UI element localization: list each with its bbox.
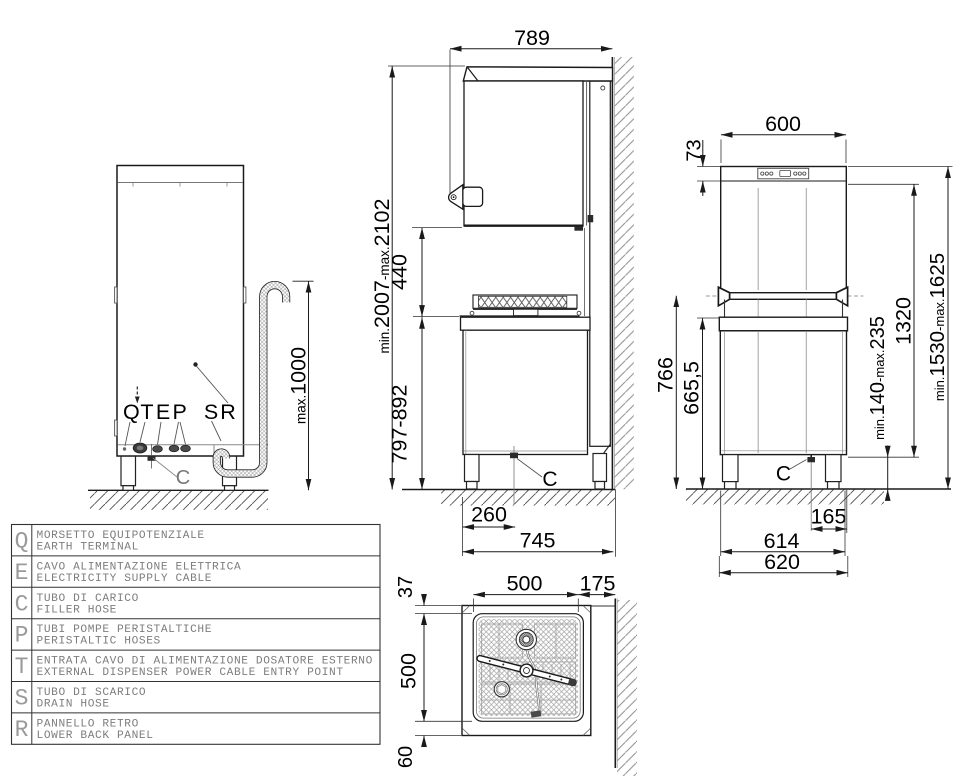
svg-text:E: E (156, 400, 170, 424)
svg-text:ELECTRICITY SUPPLY CABLE: ELECTRICITY SUPPLY CABLE (37, 573, 213, 585)
svg-text:MORSETTO EQUIPOTENZIALE: MORSETTO EQUIPOTENZIALE (37, 530, 205, 542)
svg-text:440: 440 (388, 254, 412, 290)
svg-text:TUBI POMPE PERISTALTICHE: TUBI POMPE PERISTALTICHE (37, 624, 213, 636)
svg-text:CAVO ALIMENTAZIONE ELETTRICA: CAVO ALIMENTAZIONE ELETTRICA (37, 561, 242, 573)
svg-text:S: S (15, 686, 29, 712)
svg-text:620: 620 (764, 550, 800, 574)
svg-text:Q: Q (15, 529, 29, 555)
svg-text:C: C (15, 591, 29, 617)
svg-text:EARTH TERMINAL: EARTH TERMINAL (37, 542, 139, 554)
svg-text:P: P (15, 623, 29, 649)
svg-text:LOWER BACK PANEL: LOWER BACK PANEL (37, 730, 154, 742)
svg-text:C: C (176, 467, 190, 489)
svg-text:R: R (220, 400, 236, 424)
svg-text:175: 175 (580, 572, 616, 596)
svg-text:E: E (15, 560, 29, 586)
svg-text:TUBO DI SCARICO: TUBO DI SCARICO (37, 687, 147, 699)
svg-text:C: C (776, 463, 791, 486)
svg-text:C: C (542, 468, 557, 491)
svg-text:R: R (15, 717, 29, 743)
svg-text:500: 500 (507, 572, 543, 596)
svg-text:ENTRATA CAVO DI ALIMENTAZIONE: ENTRATA CAVO DI ALIMENTAZIONE DOSATORE E… (37, 656, 373, 668)
svg-text:Q: Q (123, 400, 140, 424)
svg-text:PERISTALTIC HOSES: PERISTALTIC HOSES (37, 636, 161, 648)
svg-text:T: T (140, 400, 153, 424)
svg-text:73: 73 (684, 139, 706, 161)
svg-text:797-892: 797-892 (388, 385, 412, 464)
svg-text:165: 165 (811, 505, 847, 529)
svg-text:789: 789 (514, 26, 550, 50)
svg-text:PANNELLO RETRO: PANNELLO RETRO (37, 718, 139, 730)
svg-text:600: 600 (765, 112, 801, 136)
svg-text:EXTERNAL DISPENSER POWER CABLE: EXTERNAL DISPENSER POWER CABLE ENTRY POI… (37, 667, 344, 679)
svg-text:37: 37 (395, 576, 417, 598)
svg-text:FILLER HOSE: FILLER HOSE (37, 604, 117, 616)
svg-text:1320: 1320 (892, 297, 916, 345)
svg-text:DRAIN HOSE: DRAIN HOSE (37, 699, 110, 711)
svg-text:745: 745 (520, 529, 556, 553)
svg-text:T: T (15, 654, 29, 680)
svg-text:60: 60 (395, 746, 417, 768)
svg-text:665,5: 665,5 (680, 361, 704, 415)
svg-text:TUBO DI CARICO: TUBO DI CARICO (37, 593, 139, 605)
svg-text:766: 766 (654, 357, 678, 393)
svg-text:500: 500 (397, 653, 421, 689)
svg-text:S: S (204, 400, 218, 424)
svg-text:P: P (173, 400, 187, 424)
svg-text:260: 260 (471, 503, 507, 527)
